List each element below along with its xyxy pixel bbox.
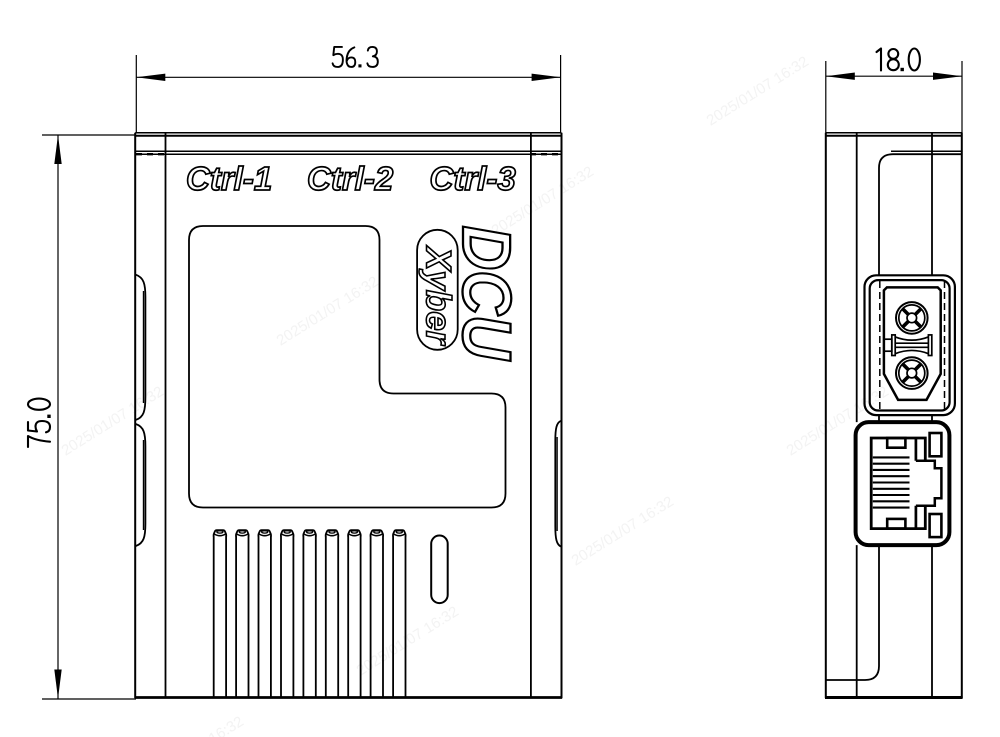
svg-text:Ctrl-3: Ctrl-3 — [430, 160, 516, 197]
svg-text:Ctrl-2: Ctrl-2 — [307, 160, 394, 197]
svg-text:Ctrl-1: Ctrl-1 — [186, 160, 272, 197]
svg-text:DCU: DCU — [448, 226, 524, 362]
svg-text:Xyber: Xyber — [419, 245, 458, 347]
